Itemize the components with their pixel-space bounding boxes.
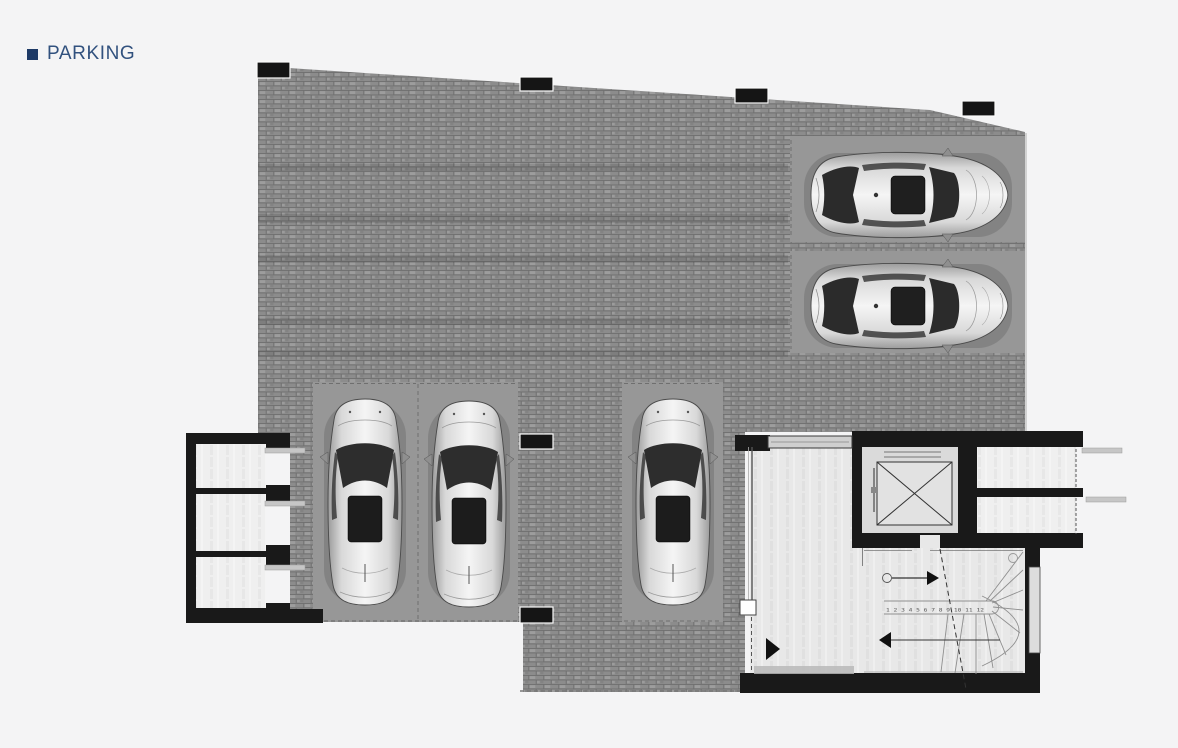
right-room-openings bbox=[1076, 448, 1126, 534]
storage-room bbox=[977, 497, 1076, 535]
square-bullet-icon bbox=[27, 49, 38, 60]
landing-door-gap bbox=[920, 535, 940, 548]
storage-room bbox=[196, 444, 266, 488]
storage-room bbox=[196, 494, 266, 551]
page-header: PARKING bbox=[27, 43, 135, 65]
car-top-view bbox=[804, 259, 1012, 353]
page-title: PARKING bbox=[47, 43, 135, 65]
door-jamb bbox=[740, 600, 756, 615]
pillar bbox=[257, 62, 290, 78]
stair-window bbox=[1029, 567, 1040, 653]
pillar bbox=[520, 434, 553, 449]
pillar bbox=[735, 88, 768, 103]
storage-walls bbox=[290, 609, 323, 623]
elevator bbox=[871, 452, 952, 525]
car-top-view bbox=[628, 399, 718, 605]
floor-plan-drawing: 1 2 3 4 5 6 7 8 9 10 11 12 bbox=[0, 0, 1178, 748]
elevator-door-knob bbox=[871, 487, 877, 493]
pillar bbox=[520, 77, 553, 91]
lobby-mat bbox=[754, 666, 854, 674]
car-top-view bbox=[424, 401, 514, 607]
storage-room bbox=[196, 557, 266, 608]
parking-plan-page: PARKING bbox=[0, 0, 1178, 748]
car-top-view bbox=[804, 148, 1012, 242]
car-top-view bbox=[320, 399, 410, 605]
stair-core: 1 2 3 4 5 6 7 8 9 10 11 12 bbox=[735, 431, 1126, 693]
pillar bbox=[962, 101, 995, 116]
storage-door-openings bbox=[266, 448, 290, 603]
stair-step-numbers: 1 2 3 4 5 6 7 8 9 10 11 12 bbox=[886, 608, 984, 614]
pillar bbox=[520, 607, 553, 623]
storage-room bbox=[977, 447, 1076, 488]
